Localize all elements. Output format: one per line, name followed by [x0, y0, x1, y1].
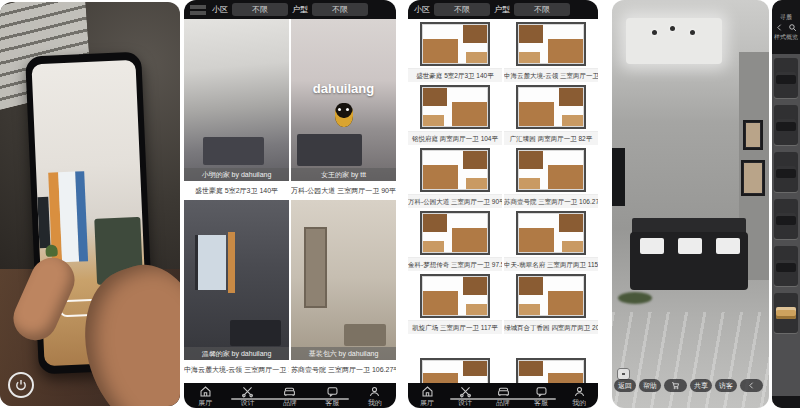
nav-showroom[interactable]: 展厅 — [412, 385, 442, 406]
floorplan-card[interactable] — [504, 145, 598, 195]
design-caption: 温馨的家 by dahuilang — [184, 347, 289, 360]
mascot-figure — [335, 103, 353, 127]
floorplan-image — [422, 150, 488, 190]
person-icon — [573, 385, 586, 398]
community-filter-button[interactable]: 不限 — [232, 3, 288, 16]
search-icon[interactable] — [788, 23, 797, 32]
window-silhouette — [195, 235, 227, 289]
floorplan-card[interactable] — [408, 357, 502, 383]
layout-filter-label: 户型 — [292, 4, 308, 15]
furniture-thumbnail[interactable] — [774, 246, 798, 286]
nav-brand[interactable]: 品牌 — [488, 385, 518, 406]
sofa-silhouette — [203, 137, 264, 165]
sofa-thumb-image — [776, 260, 796, 272]
floorplan-card[interactable] — [504, 208, 598, 258]
picture-frame — [743, 120, 763, 150]
share-button[interactable]: 共享 — [690, 379, 712, 392]
arrow-left-icon — [747, 381, 756, 390]
green-rug — [618, 292, 652, 304]
screenshot-design-gallery: 小区 不限 户型 不限 小明的家 by dahuilang dahuilang … — [184, 0, 396, 408]
screenshot-floorplan-list: 小区 不限 户型 不限 盛世豪庭 5室2厅3卫 140平 中海云麓大境-云领 三… — [408, 0, 598, 408]
back-icon[interactable] — [775, 23, 784, 32]
nav-brand[interactable]: 品牌 — [275, 385, 305, 406]
tan-sofa-thumb-image — [776, 307, 796, 319]
ceiling-light — [690, 30, 695, 35]
floorplan-card[interactable] — [408, 271, 502, 321]
design-info: 中海云麓大境-云领 三室两厅一卫 100平 — [184, 362, 289, 377]
catalog-footer — [772, 396, 800, 408]
ceiling-recess — [626, 18, 722, 64]
floorplan-image — [518, 24, 584, 64]
nav-showroom[interactable]: 展厅 — [190, 385, 220, 406]
furniture-thumbnail[interactable] — [774, 199, 798, 239]
floorplan-name: 绿城百合丁香园 四室两厅两卫 206平 — [504, 321, 598, 334]
floorplan-name: 中海云麓大境-云领 三室两厅一卫 100平 — [504, 69, 598, 82]
back-button[interactable]: 返回 — [614, 379, 636, 392]
community-filter-label: 小区 — [414, 4, 430, 15]
floorplan-card[interactable] — [408, 208, 502, 258]
design-info: 万科-公园大道 三室两厅一卫 90平 — [291, 183, 396, 198]
catalog-title: 寻麓 — [780, 14, 792, 21]
curtain-silhouette — [228, 232, 235, 293]
floorplan-image — [518, 360, 584, 383]
floorplan-name: 中天-翡翠名府 三室两厅两卫 115平 — [504, 258, 598, 271]
help-button[interactable]: 帮助 — [639, 379, 661, 392]
tv-on-wall — [37, 197, 51, 249]
home-indicator — [450, 398, 556, 400]
floorplan-card[interactable] — [408, 145, 502, 195]
nav-profile[interactable]: 我的 — [360, 385, 390, 406]
layout-filter-button[interactable]: 不限 — [312, 3, 368, 16]
bottom-nav: 展厅 设计 品牌 客服 我的 — [408, 383, 598, 408]
power-icon[interactable] — [8, 372, 34, 398]
black-sofa — [630, 232, 748, 290]
design-info: 盛世豪庭 5室2厅3卫 140平 — [184, 183, 289, 198]
cart-button[interactable] — [664, 379, 687, 392]
home-icon — [199, 385, 212, 398]
screenshot-catalog-strip: 寻麓 样式概览 — [772, 0, 800, 408]
design-card[interactable]: 基装包六 by dahuilang — [291, 200, 396, 360]
nav-profile[interactable]: 我的 — [564, 385, 594, 406]
bottom-nav: 展厅 设计 品牌 客服 我的 — [184, 383, 396, 408]
sofa-thumb-image — [776, 213, 796, 225]
sofa-silhouette — [344, 324, 386, 346]
design-caption: 女王的家 by ttt — [291, 168, 396, 181]
layout-filter-label: 户型 — [494, 4, 510, 15]
sofa-icon — [497, 385, 510, 398]
plant — [46, 245, 59, 258]
app-logo — [190, 5, 206, 15]
design-card[interactable]: 小明的家 by dahuilang — [184, 19, 289, 181]
app-store-screenshot-strip: 小区 不限 户型 不限 小明的家 by dahuilang dahuilang … — [0, 0, 800, 408]
nav-design[interactable]: 设计 — [233, 385, 263, 406]
floorplan-name: 盛世豪庭 5室2厅3卫 140平 — [408, 69, 502, 82]
frame-art — [744, 163, 762, 193]
design-card[interactable]: 温馨的家 by dahuilang — [184, 200, 289, 360]
floorplan-name: 金科-梦想传奇 三室两厅一卫 97.57平 — [408, 258, 502, 271]
floorplan-image — [518, 213, 584, 253]
floorplan-name: 铭悦府庭 两室两厅一卫 104平 — [408, 132, 502, 145]
community-filter-label: 小区 — [212, 4, 228, 15]
nav-design[interactable]: 设计 — [450, 385, 480, 406]
partial-row — [408, 357, 598, 383]
cart-icon — [671, 381, 680, 390]
floorplan-image — [518, 276, 584, 316]
floorplan-image — [518, 87, 584, 127]
design-caption: 小明的家 by dahuilang — [184, 168, 289, 181]
floorplan-card[interactable] — [504, 82, 598, 132]
sofa-thumb-image — [776, 119, 796, 131]
floorplan-image — [422, 276, 488, 316]
furniture-thumbnail[interactable] — [774, 58, 798, 98]
layout-filter-button[interactable]: 不限 — [514, 3, 570, 16]
sofa-silhouette — [230, 320, 280, 346]
floorplan-name: 广汇臻园 两室两厅一卫 82平 — [504, 132, 598, 145]
floorplan-image — [422, 360, 488, 383]
nav-support[interactable]: 客服 — [526, 385, 556, 406]
filter-bar: 小区 不限 户型 不限 — [408, 0, 598, 19]
floorplan-image — [422, 213, 488, 253]
chat-icon — [535, 385, 548, 398]
screenshot-ar-photo — [0, 2, 180, 406]
floorplan-card[interactable] — [504, 357, 598, 383]
community-filter-button[interactable]: 不限 — [434, 3, 490, 16]
floorplan-grid: 盛世豪庭 5室2厅3卫 140平 中海云麓大境-云领 三室两厅一卫 100平 铭… — [408, 19, 598, 383]
sofa-cushion — [640, 238, 664, 254]
sofa-cushion — [716, 238, 740, 254]
tv-screen — [612, 148, 625, 206]
floorplan-card[interactable] — [504, 271, 598, 321]
catalog-icons — [775, 23, 797, 32]
floorplan-image — [422, 24, 488, 64]
visitor-button[interactable]: 访客 — [715, 379, 737, 392]
design-caption: 基装包六 by dahuilang — [291, 347, 396, 360]
door-silhouette — [306, 229, 325, 306]
filter-bar: 小区 不限 户型 不限 — [184, 0, 396, 19]
avatar-walk-control[interactable]: ▲ ▼ — [766, 374, 769, 396]
sofa-silhouette — [297, 134, 362, 166]
chat-icon — [326, 385, 339, 398]
scissors-icon — [459, 385, 472, 398]
frame-art — [746, 123, 760, 147]
picture-frame — [741, 160, 765, 196]
sofa-icon — [283, 385, 296, 398]
floorplan-card[interactable] — [408, 82, 502, 132]
screenshot-room-viewer: 返回 帮助 共享 访客 ▲ ▼ 家具 保存 — [612, 0, 769, 408]
furniture-thumbnail[interactable] — [774, 152, 798, 192]
person-icon — [368, 385, 381, 398]
sofa-thumb-image — [776, 72, 796, 84]
design-info: 苏商壹号院 三室两厅一卫 106.27平 — [291, 362, 396, 377]
nav-support[interactable]: 客服 — [317, 385, 347, 406]
floorplan-card[interactable] — [408, 19, 502, 69]
watermark-text: dahuilang — [291, 81, 396, 96]
home-icon — [421, 385, 434, 398]
catalog-subtitle: 样式概览 — [774, 34, 798, 41]
design-grid: 小明的家 by dahuilang dahuilang 女王的家 by ttt … — [184, 19, 396, 383]
sofa-thumb-image — [776, 166, 796, 178]
floorplan-image — [422, 87, 488, 127]
rotate-left-button[interactable] — [740, 379, 763, 392]
floorplan-card[interactable] — [504, 19, 598, 69]
floorplan-name: 万科-公园大道 三室两厅一卫 90平 — [408, 195, 502, 208]
ceiling-light — [652, 30, 657, 35]
catalog-header: 寻麓 样式概览 — [772, 0, 800, 54]
home-indicator — [231, 398, 350, 400]
furniture-thumb-list — [772, 56, 800, 333]
viewer-toolbar: 返回 帮助 共享 访客 ▲ ▼ 家具 保存 — [614, 374, 769, 396]
floorplan-image — [518, 150, 584, 190]
ceiling-light — [670, 26, 675, 31]
floorplan-name: 苏商壹号院 三室两厅一卫 106.27平 — [504, 195, 598, 208]
sofa-cushion — [678, 238, 702, 254]
furniture-thumbnail-selected[interactable] — [774, 293, 798, 333]
scissors-icon — [241, 385, 254, 398]
furniture-thumbnail[interactable] — [774, 105, 798, 145]
floorplan-name: 凯旋广场 三室两厅一卫 117平 — [408, 321, 502, 334]
person-icon — [768, 380, 769, 390]
design-card[interactable]: dahuilang 女王的家 by ttt — [291, 19, 396, 181]
